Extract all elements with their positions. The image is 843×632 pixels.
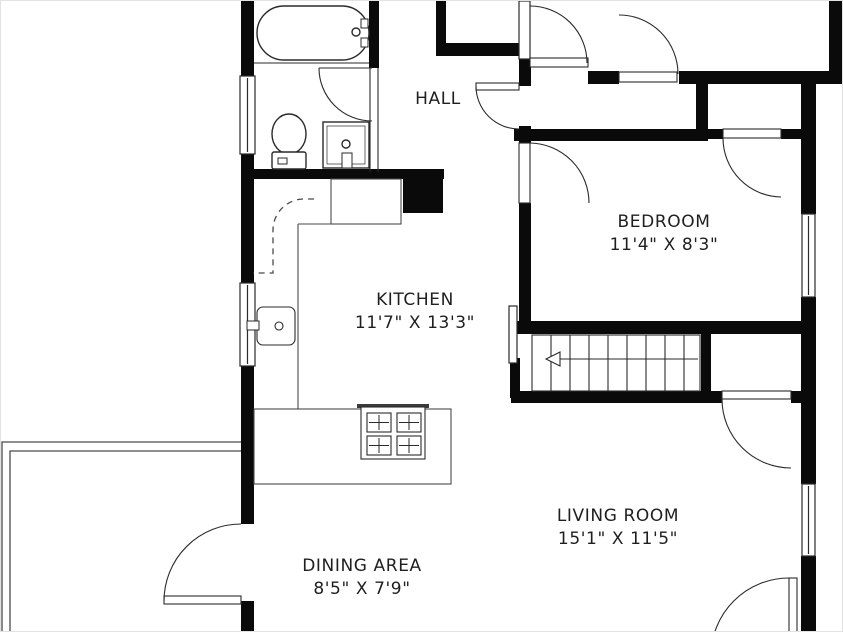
bedroom-door [519, 143, 589, 203]
floor-plan: HALL BEDROOM 11'4" X 8'3" KITCHEN 11'7" … [0, 0, 843, 632]
room-dims: 11'4" X 8'3" [564, 234, 764, 257]
living-room-south-door [711, 578, 797, 632]
room-name: DINING AREA [262, 555, 462, 578]
cased-opening [519, 1, 530, 59]
room-label-hall: HALL [358, 88, 518, 111]
vanity-sink [323, 122, 369, 168]
room-label-dining-area: DINING AREA 8'5" X 7'9" [262, 555, 462, 601]
deck-door [164, 524, 241, 604]
room-label-kitchen: KITCHEN 11'7" X 13'3" [315, 289, 515, 335]
room-name: KITCHEN [315, 289, 515, 312]
bedroom-window [802, 214, 815, 297]
bathtub [254, 6, 369, 63]
room-name: LIVING ROOM [518, 505, 718, 528]
room-dims: 8'5" X 7'9" [262, 578, 462, 601]
room-dims: 15'1" X 11'5" [518, 528, 718, 551]
stairs [532, 335, 700, 391]
room-label-living-room: LIVING ROOM 15'1" X 11'5" [518, 505, 718, 551]
toilet [272, 114, 306, 169]
refrigerator [331, 179, 401, 224]
bathroom-fixtures [254, 6, 369, 169]
living-room-closet-door [722, 391, 791, 468]
room-label-bedroom: BEDROOM 11'4" X 8'3" [564, 211, 764, 257]
room-name: BEDROOM [564, 211, 764, 234]
upper-room-door-right [619, 15, 678, 82]
bedroom-closet-door [723, 129, 781, 197]
upper-cabinets-dashed [253, 199, 314, 273]
room-dims: 11'7" X 13'3" [315, 312, 515, 335]
room-name: HALL [358, 88, 518, 111]
chimney [403, 179, 443, 213]
bathroom-window [240, 76, 255, 154]
stove [357, 404, 429, 459]
living-room-window [802, 484, 815, 556]
upper-room-door-left [530, 6, 588, 67]
